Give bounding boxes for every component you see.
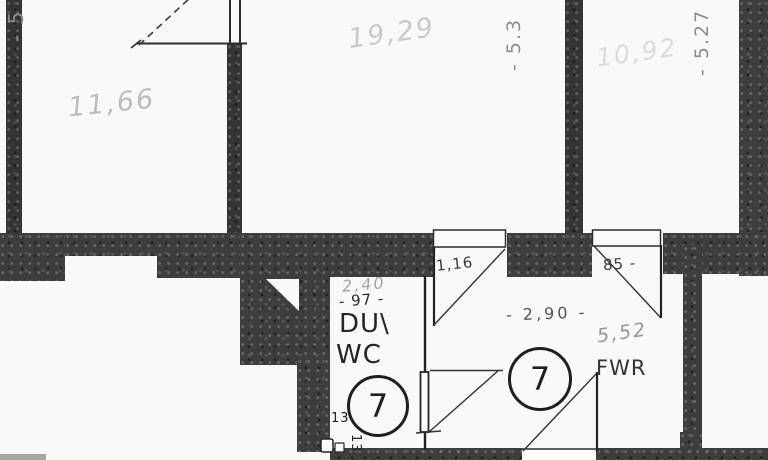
dim-vertical-left: - 5 xyxy=(6,10,26,42)
dim-vertical-right: - 5.27 xyxy=(693,9,712,76)
floor-plan: 11,66 19,29 10,92 - 5 - 5.3 - 5.27 2,40 … xyxy=(0,0,768,460)
wall-bottom-right-of-door xyxy=(596,448,768,460)
door-top-swing-dashed xyxy=(139,0,191,45)
bath-unit-number: 7 xyxy=(368,387,388,425)
wall-partition-room2-room3 xyxy=(565,0,583,239)
wall-band-mid xyxy=(157,233,244,278)
hall-area-label: 5,52 xyxy=(596,321,648,347)
wall-bath-left xyxy=(297,358,330,452)
door-b-width-dim: 85 - xyxy=(603,256,637,273)
bath-wall-tick xyxy=(416,431,441,433)
hall-width-dim: - 2,90 - xyxy=(506,305,588,324)
room2-area-label: 19,29 xyxy=(347,14,437,53)
wall-partition-room1-room2 xyxy=(227,43,242,238)
wall-band-stub xyxy=(507,233,592,277)
wall-thickness-a: 13 xyxy=(331,412,350,425)
door-a-width-dim: 1,16 xyxy=(435,255,474,274)
bath-label-line1: DU\ xyxy=(339,311,390,337)
bath-label-line2: WC xyxy=(336,342,382,368)
wall-thickness-b: 13 xyxy=(349,434,362,453)
wall-band-over-bath xyxy=(330,233,433,277)
wall-band-left xyxy=(0,233,65,281)
door-bottom-opening xyxy=(522,447,596,460)
wall-block-bath-corner xyxy=(240,233,330,365)
room3-area-label: 10,92 xyxy=(595,34,679,70)
door-b-threshold xyxy=(593,230,661,246)
wall-band-niche-top xyxy=(65,233,157,256)
room1-area-label: 11,66 xyxy=(67,86,157,122)
dim-vertical-middle: - 5.3 xyxy=(505,18,524,71)
hall-name-label: FWR xyxy=(596,358,646,379)
door-a-threshold xyxy=(434,230,506,247)
bath-door-leaf xyxy=(421,372,429,432)
bath-door-swing xyxy=(429,370,499,432)
bath-width-dim: - 97 - xyxy=(339,291,385,309)
bath-unit-number-circle: 7 xyxy=(347,375,409,437)
wall-bottom-left-faint xyxy=(0,454,46,460)
door-top-arrow-tick xyxy=(131,40,141,48)
wall-hall-right xyxy=(683,245,702,436)
hall-unit-number-circle: 7 xyxy=(508,347,572,411)
wall-band-right xyxy=(663,233,768,274)
hall-unit-number: 7 xyxy=(530,360,550,398)
